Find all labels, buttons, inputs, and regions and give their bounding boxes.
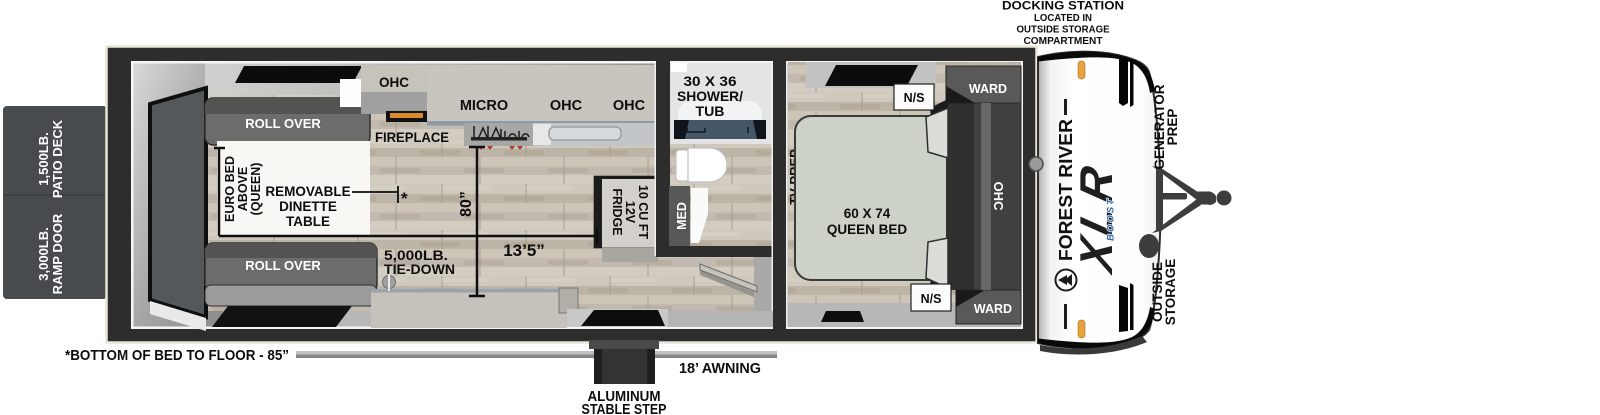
svg-text:DOCKING STATION: DOCKING STATION: [1002, 1, 1124, 13]
svg-text:OHC: OHC: [613, 98, 646, 114]
svg-text:5,000LB.: 5,000LB.: [384, 248, 448, 263]
svg-text:*BOTTOM OF BED TO FLOOR - 85”: *BOTTOM OF BED TO FLOOR - 85”: [65, 347, 289, 364]
svg-text:*: *: [401, 189, 408, 208]
svg-text:80”: 80”: [458, 191, 475, 217]
svg-text:ROLL OVER: ROLL OVER: [245, 258, 321, 273]
svg-text:FIREPLACE: FIREPLACE: [375, 129, 449, 145]
svg-text:18’ AWNING: 18’ AWNING: [679, 360, 761, 377]
svg-text:STABLE STEP: STABLE STEP: [582, 401, 667, 415]
svg-text:MED: MED: [675, 202, 689, 230]
svg-text:ABOVE: ABOVE: [236, 167, 250, 211]
svg-text:30 X 36: 30 X 36: [684, 73, 737, 89]
svg-text:TIE-DOWN: TIE-DOWN: [384, 262, 455, 277]
svg-text:RAMP DOOR: RAMP DOOR: [50, 213, 65, 294]
svg-text:WARD: WARD: [974, 302, 1012, 316]
svg-text:13’5”: 13’5”: [503, 241, 545, 260]
svg-text:3,000LB.: 3,000LB.: [36, 227, 51, 280]
svg-text:PATIO DECK: PATIO DECK: [50, 119, 65, 198]
svg-text:SHOWER/: SHOWER/: [677, 88, 743, 104]
svg-text:OHC: OHC: [379, 75, 409, 90]
svg-text:OUTSIDE STORAGE: OUTSIDE STORAGE: [1017, 24, 1110, 36]
svg-text:12V: 12V: [623, 201, 637, 224]
svg-text:TABLE: TABLE: [286, 214, 330, 229]
svg-text:QUEEN BED: QUEEN BED: [827, 222, 908, 237]
svg-text:PREP: PREP: [1165, 109, 1180, 146]
svg-text:WARD: WARD: [969, 82, 1007, 96]
svg-text:MICRO: MICRO: [460, 98, 508, 114]
svg-text:REMOVABLE: REMOVABLE: [265, 184, 350, 199]
svg-text:N/S: N/S: [921, 292, 942, 306]
svg-text:BOOST: BOOST: [1106, 197, 1117, 241]
svg-text:DINETTE: DINETTE: [279, 199, 337, 214]
svg-text:STORAGE: STORAGE: [1163, 259, 1178, 326]
svg-text:COMPARTMENT: COMPARTMENT: [1024, 35, 1104, 47]
svg-text:N/S: N/S: [904, 91, 925, 105]
svg-text:EURO BED: EURO BED: [223, 156, 237, 222]
svg-text:TUB: TUB: [696, 103, 725, 119]
svg-text:10 CU FT: 10 CU FT: [636, 185, 650, 240]
svg-text:60 X 74: 60 X 74: [844, 206, 891, 221]
svg-text:FRIDGE: FRIDGE: [610, 188, 624, 235]
svg-text:(QUEEN): (QUEEN): [249, 163, 263, 216]
svg-text:ROLL OVER: ROLL OVER: [245, 116, 321, 131]
svg-text:1,500LB.: 1,500LB.: [36, 132, 51, 185]
svg-text:OHC: OHC: [991, 182, 1006, 212]
svg-text:OHC: OHC: [550, 98, 583, 114]
svg-text:LOCATED IN: LOCATED IN: [1034, 12, 1092, 24]
